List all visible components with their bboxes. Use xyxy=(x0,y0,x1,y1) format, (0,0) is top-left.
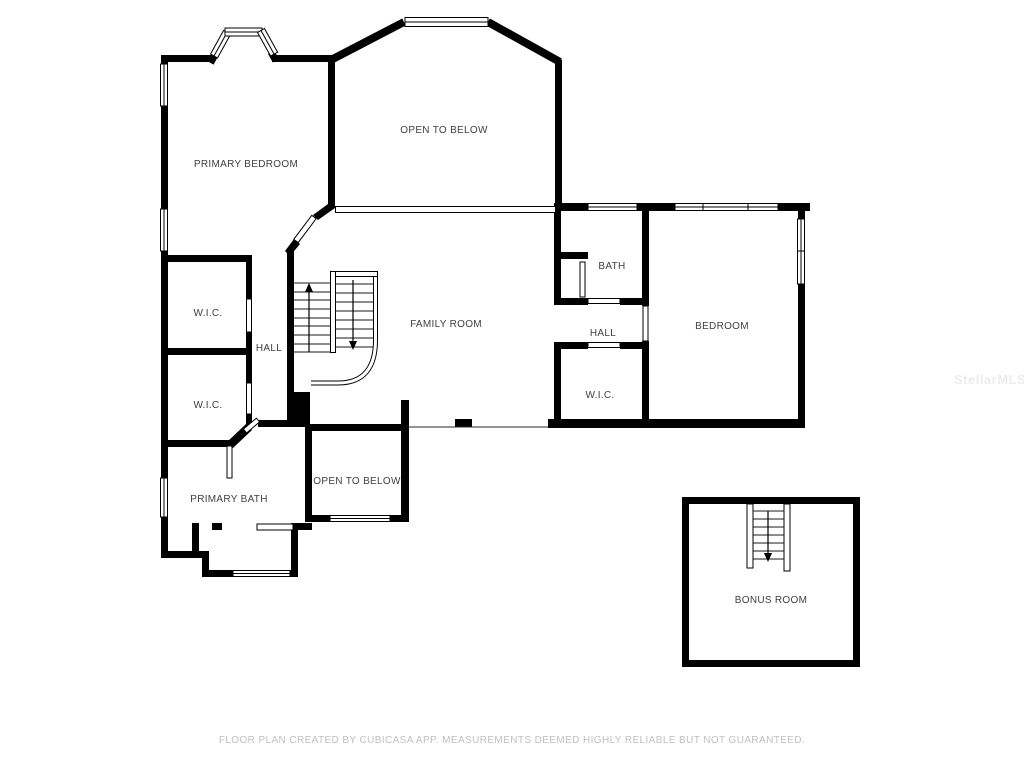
wall-segment xyxy=(328,55,335,208)
room-label-wic-left-upper: W.I.C. xyxy=(193,308,222,319)
stairs-down-arrow-icon xyxy=(349,280,357,350)
window xyxy=(798,219,805,284)
bonus-staircase xyxy=(747,504,790,571)
railing-open-to-below xyxy=(336,207,556,213)
wall-segment xyxy=(161,440,230,447)
wall-segment xyxy=(258,420,310,427)
wall-segment xyxy=(305,424,312,522)
wall-segment xyxy=(161,255,252,262)
bath-counter xyxy=(257,524,293,530)
room-label-primary-bedroom: PRIMARY BEDROOM xyxy=(194,159,298,170)
railings xyxy=(311,207,556,428)
wall-segment xyxy=(246,255,252,299)
wall-segment xyxy=(401,400,409,522)
room-label-wic-right: W.I.C. xyxy=(585,390,614,401)
room-label-primary-bath: PRIMARY BATH xyxy=(190,494,268,505)
room-label-family-room: FAMILY ROOM xyxy=(410,319,482,330)
stair-flight-divider xyxy=(331,272,336,353)
room-label-hall-left: HALL xyxy=(256,343,282,354)
watermark: StellarMLS xyxy=(954,372,1024,387)
wall-segment xyxy=(620,342,649,349)
wall-segment xyxy=(161,348,252,355)
wall-segment xyxy=(853,497,860,667)
stair-enclosure-top xyxy=(331,272,378,277)
window xyxy=(675,204,778,211)
wall-segment xyxy=(329,19,406,64)
window xyxy=(330,516,390,522)
door-bedroom xyxy=(643,306,648,341)
window xyxy=(405,18,488,27)
door-wic-upper xyxy=(247,299,252,332)
door-wic-right xyxy=(588,343,620,348)
door-wic-lower xyxy=(247,383,252,414)
wall-segment xyxy=(486,19,562,66)
wall-segment xyxy=(455,419,472,427)
wall-segment xyxy=(246,332,252,383)
wall-segment xyxy=(682,497,689,667)
wall-segment xyxy=(192,523,199,552)
door-leaf-primary-bath xyxy=(227,446,232,478)
door-bath-right xyxy=(588,299,620,304)
wall-segment xyxy=(272,55,332,62)
room-labels: PRIMARY BEDROOM OPEN TO BELOW FAMILY ROO… xyxy=(190,125,807,606)
wall-segment xyxy=(212,523,222,530)
window xyxy=(233,571,290,577)
floor-plan-drawing: PRIMARY BEDROOM OPEN TO BELOW FAMILY ROO… xyxy=(0,0,1024,768)
wall-segment xyxy=(554,342,588,349)
door-bath-closet xyxy=(580,262,585,297)
footer-disclaimer: FLOOR PLAN CREATED BY CUBICASA APP. MEAS… xyxy=(0,735,1024,746)
wall-segment xyxy=(291,523,312,530)
window xyxy=(161,64,168,106)
window xyxy=(161,478,168,517)
wall-segment xyxy=(642,203,649,306)
room-label-hall-right: HALL xyxy=(590,328,616,339)
room-label-bonus-room: BONUS ROOM xyxy=(735,595,807,606)
wall-segment xyxy=(555,60,562,210)
wall-segment xyxy=(161,551,209,558)
wall-segment xyxy=(554,298,588,305)
wall-segment xyxy=(642,341,649,428)
door-primary-bedroom xyxy=(294,215,316,242)
room-label-bedroom: BEDROOM xyxy=(695,321,749,332)
room-label-wic-left-lower: W.I.C. xyxy=(193,400,222,411)
room-label-bath: BATH xyxy=(598,261,625,272)
windows xyxy=(161,18,805,577)
stair-rail xyxy=(784,504,790,571)
wall-segment xyxy=(682,497,860,504)
wall-segment xyxy=(313,204,335,220)
wall-segment xyxy=(682,660,860,667)
wall-segment xyxy=(161,55,215,62)
wall-segment xyxy=(554,343,561,428)
window xyxy=(161,209,168,251)
window xyxy=(588,204,637,211)
floor-plan-page: PRIMARY BEDROOM OPEN TO BELOW FAMILY ROO… xyxy=(0,0,1024,768)
wall-segment xyxy=(554,252,588,259)
bay-window xyxy=(211,28,278,58)
stair-rail xyxy=(747,504,753,568)
wall-segment xyxy=(291,523,298,577)
room-label-open-to-below-lower: OPEN TO BELOW xyxy=(313,476,401,487)
wall-segment xyxy=(620,298,649,305)
wall-segment xyxy=(305,424,408,431)
wall-segment xyxy=(548,419,805,428)
room-label-open-to-below-upper: OPEN TO BELOW xyxy=(400,125,488,136)
